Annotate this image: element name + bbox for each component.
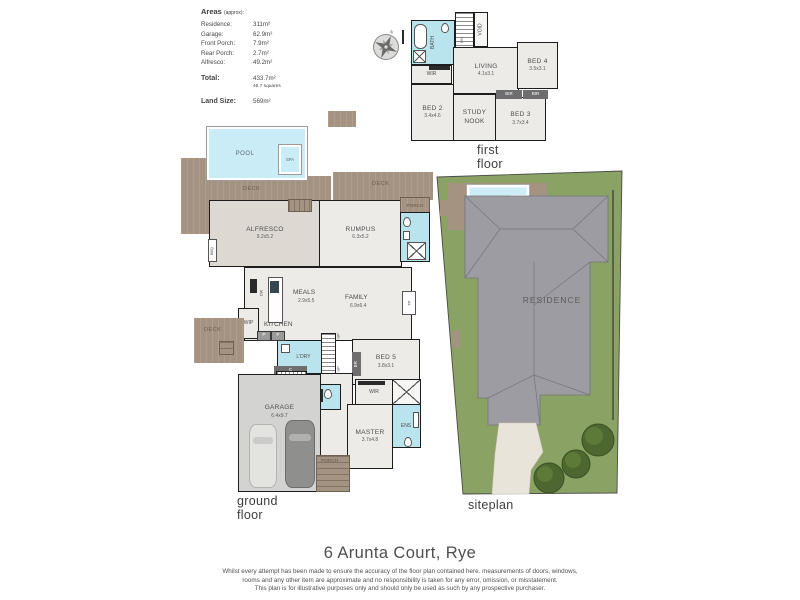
wir-first-label: WIR bbox=[427, 72, 437, 77]
fireplace-box: FP bbox=[402, 291, 416, 315]
dn-label: DN bbox=[460, 37, 464, 43]
bed3-dims: 3.7x3.4 bbox=[512, 121, 528, 126]
bed4-label: BED 4 bbox=[527, 59, 547, 66]
ground-floor-caption: ground floor bbox=[237, 494, 278, 522]
bath-label: BATH bbox=[431, 36, 436, 49]
shower-fixture bbox=[413, 50, 426, 63]
rumpus-label: RUMPUS bbox=[346, 227, 376, 234]
garage-label: GARAGE bbox=[265, 405, 295, 412]
deck-steps-alfresco bbox=[288, 199, 312, 212]
porch-top-right: PORCH bbox=[400, 197, 430, 213]
linen-store bbox=[392, 379, 421, 405]
area-row-label: Front Porch: bbox=[201, 39, 253, 49]
basin-fixture-ground-bath bbox=[403, 231, 410, 240]
car-dark bbox=[285, 420, 315, 488]
toilet-fixture-ens bbox=[404, 437, 412, 447]
bed5-label: BED 5 bbox=[376, 355, 396, 362]
laundry-trough bbox=[281, 344, 290, 353]
pool-label: POOL bbox=[236, 151, 255, 157]
areas-landsize: Land Size: 569m² bbox=[201, 97, 371, 107]
area-row-value: 62.9m² bbox=[253, 30, 272, 40]
deck-label-2: DECK bbox=[372, 181, 389, 187]
area-row-garage: Garage: 62.9m² bbox=[201, 30, 371, 40]
laundry-label: L'DRY bbox=[296, 355, 310, 360]
areas-approx: (approx): bbox=[224, 10, 244, 16]
siteplan-residence-label: RESIDENCE bbox=[523, 295, 582, 305]
dw-label: DW bbox=[260, 290, 264, 296]
deck-steps-left bbox=[219, 341, 234, 355]
car-windshield bbox=[289, 434, 311, 441]
master-label: MASTER bbox=[356, 430, 385, 437]
land-label: Land Size: bbox=[201, 97, 253, 107]
bed2-label: BED 2 bbox=[422, 106, 442, 113]
areas-title: Areas bbox=[201, 7, 222, 16]
alfresco-label: ALFRESCO bbox=[246, 227, 283, 234]
room-study-nook: STUDY NOOK bbox=[453, 94, 496, 141]
bed5-robe: BR bbox=[352, 352, 361, 376]
compass-icon: N bbox=[370, 28, 404, 68]
robe-shelf bbox=[429, 66, 450, 70]
total-label: Total: bbox=[201, 74, 253, 90]
area-row-label: Rear Porch: bbox=[201, 49, 253, 59]
study-label-line2: NOOK bbox=[464, 119, 484, 126]
area-row-value: 2.7m² bbox=[253, 49, 269, 59]
room-master: MASTER 3.7x4.8 bbox=[347, 404, 393, 469]
study-label-line1: STUDY bbox=[463, 110, 487, 117]
car-light bbox=[249, 424, 277, 488]
area-row-label: Garage: bbox=[201, 30, 253, 40]
bed4-dims: 3.5x3.1 bbox=[529, 67, 545, 72]
areas-rows: Residence: 311m² Garage: 62.9m² Front Po… bbox=[201, 20, 371, 68]
areas-panel: Areas (approx): Residence: 311m² Garage:… bbox=[201, 8, 371, 106]
area-row-label: Alfresco: bbox=[201, 58, 253, 68]
ens-vanity bbox=[413, 412, 419, 428]
bir-robe-left: BIR bbox=[496, 90, 522, 99]
bir-robe-right: BIR bbox=[523, 90, 548, 99]
wip-label: WIP bbox=[244, 321, 253, 326]
wir-master-label: WIR bbox=[369, 390, 379, 395]
deck-small-top bbox=[328, 111, 356, 127]
disclaimer-line-2: rooms and any other item are approximate… bbox=[0, 577, 800, 586]
room-bed2: BED 2 3.4x4.6 bbox=[411, 84, 454, 141]
stairs-ground-up bbox=[321, 333, 336, 375]
oven-tower bbox=[250, 279, 257, 293]
family-label: FAMILY bbox=[345, 295, 368, 302]
stairs-first-floor bbox=[455, 12, 474, 49]
total-value: 433.7m² bbox=[253, 74, 281, 84]
alfresco-dims: 9.2x5.2 bbox=[257, 235, 273, 240]
meals-label: MEALS bbox=[293, 290, 315, 297]
fp-label: FP bbox=[407, 301, 411, 306]
disclaimer-line-3: This plan is for illustrative purposes o… bbox=[0, 585, 800, 594]
porch-front-steps: PORCH bbox=[316, 455, 350, 492]
garage-dims: 6.4x9.7 bbox=[271, 414, 287, 419]
room-living: LIVING 4.1x3.1 bbox=[453, 47, 519, 94]
master-dims: 3.7x4.8 bbox=[362, 438, 378, 443]
areas-total: Total: 433.7m² 46.7 squares bbox=[201, 74, 371, 90]
bed2-dims: 3.4x4.6 bbox=[424, 114, 440, 119]
meals-dims: 2.9x5.5 bbox=[298, 299, 314, 304]
room-rumpus: RUMPUS 6.3x5.2 bbox=[319, 200, 402, 267]
bathtub-fixture bbox=[414, 24, 427, 49]
dishwasher bbox=[270, 281, 279, 293]
bed5-dims: 3.8x3.1 bbox=[378, 364, 394, 369]
room-bed3: BED 3 3.7x3.4 bbox=[495, 97, 546, 141]
siteplan-map: POOL SPA RESIDENCE bbox=[430, 165, 630, 505]
deck-label-3: DECK bbox=[204, 327, 221, 333]
room-bed4: BED 4 3.5x3.1 bbox=[517, 42, 558, 89]
spa-label: SPA bbox=[286, 157, 294, 162]
family-dims: 6.9x6.4 bbox=[350, 304, 366, 309]
living-dims: 4.1x3.1 bbox=[478, 72, 494, 77]
pantry-p: P bbox=[257, 331, 271, 341]
rumpus-dims: 6.3x5.2 bbox=[352, 235, 368, 240]
siteplan-roof bbox=[465, 196, 608, 425]
area-row-value: 7.9m² bbox=[253, 39, 269, 49]
toilet-fixture bbox=[441, 23, 449, 33]
car-windshield bbox=[253, 437, 273, 444]
toilet-fixture-powder bbox=[324, 389, 332, 399]
disclaimer-line-1: Whilst every attempt has been made to en… bbox=[0, 568, 800, 577]
area-row-residence: Residence: 311m² bbox=[201, 20, 371, 30]
spa-ground: SPA bbox=[279, 145, 301, 174]
wir-master-shelf bbox=[358, 381, 385, 385]
bbq-fixture: BBQ bbox=[208, 239, 217, 262]
total-squares: 46.7 squares bbox=[253, 84, 281, 90]
bed3-label: BED 3 bbox=[510, 112, 530, 119]
fridge-f: F bbox=[271, 331, 285, 341]
siteplan-deck-arm bbox=[440, 200, 448, 216]
wall-segment bbox=[402, 30, 404, 44]
area-row-label: Residence: bbox=[201, 20, 253, 30]
area-row-rear-porch: Rear Porch: 2.7m² bbox=[201, 49, 371, 59]
area-row-value: 311m² bbox=[253, 20, 270, 30]
area-row-value: 49.2m² bbox=[253, 58, 272, 68]
footer: 6 Arunta Court, Rye Whilst every attempt… bbox=[0, 544, 800, 594]
ens-label: ENS bbox=[401, 424, 411, 429]
void-label: VOID bbox=[479, 23, 484, 35]
deck-label-1: DECK bbox=[243, 186, 260, 192]
room-void: VOID bbox=[474, 12, 488, 47]
porch-front-label: PORCH bbox=[321, 459, 338, 464]
area-row-alfresco: Alfresco: 49.2m² bbox=[201, 58, 371, 68]
porch-top-label: PORCH bbox=[407, 203, 424, 208]
bbq-label: BBQ bbox=[211, 246, 215, 254]
up-label-2: UP bbox=[338, 366, 342, 371]
siteplan-caption: siteplan bbox=[468, 498, 514, 512]
area-row-front-porch: Front Porch: 7.9m² bbox=[201, 39, 371, 49]
shower-fixture-ground-bath bbox=[407, 242, 426, 260]
living-label: LIVING bbox=[474, 64, 497, 71]
siteplan-deck-steps bbox=[452, 330, 460, 348]
toilet-fixture-ground-bath bbox=[403, 217, 411, 227]
land-value: 569m² bbox=[253, 97, 271, 107]
up-label-1: UP bbox=[338, 333, 342, 338]
br-label: BR bbox=[354, 361, 359, 367]
floorplan-page: Areas (approx): Residence: 311m² Garage:… bbox=[0, 0, 800, 600]
compass-north-label: N bbox=[389, 29, 394, 35]
address-title: 6 Arunta Court, Rye bbox=[0, 544, 800, 563]
